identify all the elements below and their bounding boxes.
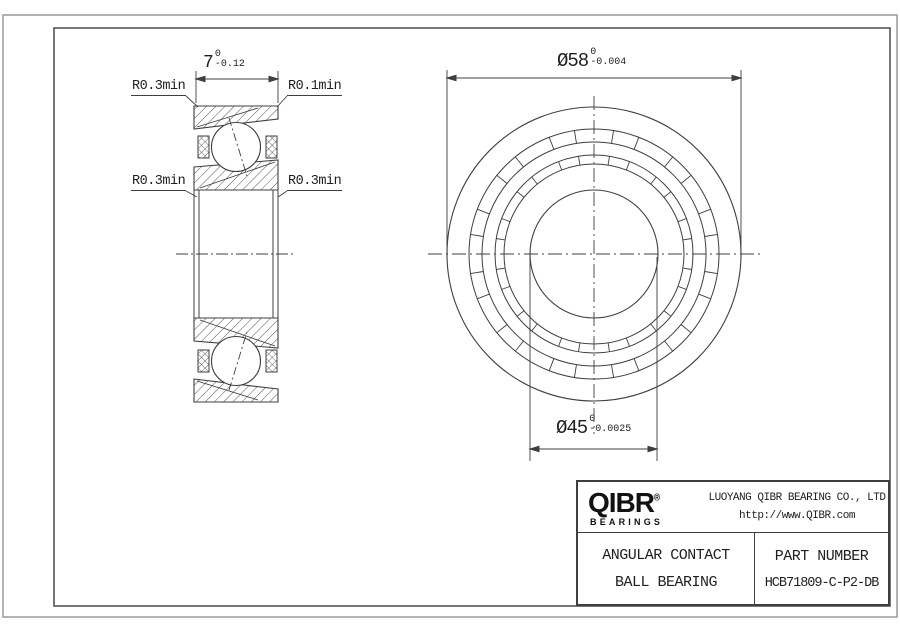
- bore-diameter-dimension-text: Ø45 0 -0.0025: [556, 418, 631, 438]
- radius-label-outer-left: R0.3min: [131, 79, 186, 96]
- radius-label-inner-left: R0.3min: [131, 174, 186, 191]
- title-block: QIBR® BEARINGS LUOYANG QIBR BEARING CO.,…: [576, 480, 890, 606]
- part-number-label: PART NUMBER: [775, 548, 869, 565]
- company-website: http://www.QIBR.com: [706, 510, 888, 523]
- cage-section: [198, 350, 209, 372]
- front-view: [428, 96, 762, 434]
- product-type-cell: ANGULAR CONTACT BALL BEARING: [578, 533, 755, 605]
- radius-label-inner-right: R0.3min: [287, 174, 342, 191]
- product-type-line1: ANGULAR CONTACT: [602, 547, 730, 564]
- outer-diameter-dimension-text: Ø58 0 -0.004: [557, 51, 626, 71]
- cage-section: [266, 350, 277, 372]
- section-view: [176, 106, 294, 402]
- bearing-drawing-page: 7 0 -0.12 Ø58 0 -0.004 Ø45 0 -0.0025 R0.…: [0, 0, 900, 636]
- part-number-cell: PART NUMBER HCB71809-C-P2-DB: [755, 533, 888, 605]
- ball-top: [212, 123, 261, 172]
- company-info: LUOYANG QIBR BEARING CO., LTD http://www…: [706, 492, 888, 523]
- width-dimension-text: 7 0 -0.12: [203, 53, 245, 73]
- part-number-value: HCB71809-C-P2-DB: [765, 576, 879, 591]
- logo-text: QIBR: [588, 487, 654, 518]
- radius-label-outer-right: R0.1min: [287, 79, 342, 96]
- ball-bottom: [212, 337, 261, 386]
- cage-section: [198, 136, 209, 158]
- company-name: LUOYANG QIBR BEARING CO., LTD: [706, 492, 888, 505]
- cage-section: [266, 136, 277, 158]
- title-block-header-row: QIBR® BEARINGS LUOYANG QIBR BEARING CO.,…: [578, 482, 888, 533]
- brand-logo: QIBR® BEARINGS: [578, 488, 706, 527]
- registered-trademark-icon: ®: [654, 494, 660, 505]
- product-type-line2: BALL BEARING: [615, 574, 717, 591]
- logo-subtext: BEARINGS: [588, 517, 706, 527]
- title-block-body-row: ANGULAR CONTACT BALL BEARING PART NUMBER…: [578, 533, 888, 605]
